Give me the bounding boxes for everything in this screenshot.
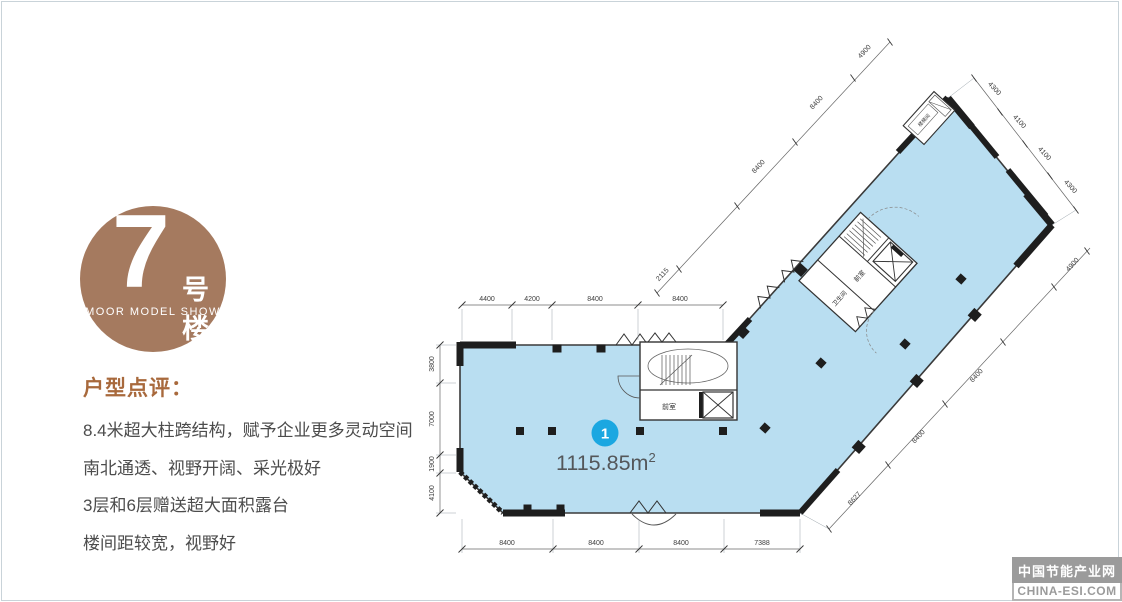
review-line: 楼间距较宽，视野好	[83, 535, 413, 554]
dim-label: 4300	[1062, 179, 1078, 195]
dim-label: 8400	[673, 540, 689, 547]
elevator-icon	[699, 392, 733, 418]
dim-label: 4100	[1036, 146, 1052, 162]
dim-label: 4100	[429, 485, 436, 501]
building-badge: 7 号楼 MOOR MODEL SHOW	[80, 206, 226, 352]
dim-label: 1900	[429, 456, 436, 472]
watermark: 中国节能产业网 CHINA-ESI.COM	[1012, 557, 1122, 601]
building-number: 7	[112, 200, 170, 304]
review-line: 8.4米超大柱跨结构，赋予企业更多灵动空间	[83, 422, 413, 441]
unit-area: 1115.85m2	[556, 450, 656, 475]
dim-label: 8400	[499, 540, 515, 547]
dim-label: 8400	[911, 429, 927, 445]
dim-label: 7000	[429, 411, 436, 427]
unit-number: 1	[601, 426, 609, 443]
dim-label: 8400	[969, 368, 985, 384]
review-heading: 户型点评：	[83, 372, 413, 402]
dim-label: 7388	[754, 540, 770, 547]
dim-label: 8627	[847, 491, 863, 507]
watermark-name: 中国节能产业网	[1012, 557, 1122, 583]
dim-label: 4900	[857, 44, 873, 60]
review-line: 3层和6层赠送超大面积露台	[83, 497, 413, 516]
dim-label: 8400	[751, 159, 767, 175]
dim-label: 4100	[1011, 114, 1027, 130]
watermark-url: CHINA-ESI.COM	[1012, 583, 1122, 601]
dim-label: 8400	[672, 296, 688, 303]
dim-label: 4900	[1065, 257, 1081, 273]
floor-plan: 前室 前室 卫生间 楼梯间	[415, 10, 1105, 590]
dim-label: 4400	[479, 296, 495, 303]
building-outline	[460, 98, 1052, 513]
unit-review: 户型点评： 8.4米超大柱跨结构，赋予企业更多灵动空间 南北通透、视野开阔、采光…	[83, 372, 413, 573]
review-line: 南北通透、视野开阔、采光极好	[83, 460, 413, 479]
room-label-front: 前室	[662, 402, 676, 411]
badge-subtitle: MOOR MODEL SHOW	[80, 306, 226, 318]
dim-label: 8400	[588, 540, 604, 547]
dim-label: 4300	[986, 81, 1002, 97]
dim-label: 3800	[429, 356, 436, 372]
dim-label: 8400	[587, 296, 603, 303]
dim-label: 4200	[524, 296, 540, 303]
dim-label: 8400	[809, 95, 825, 111]
